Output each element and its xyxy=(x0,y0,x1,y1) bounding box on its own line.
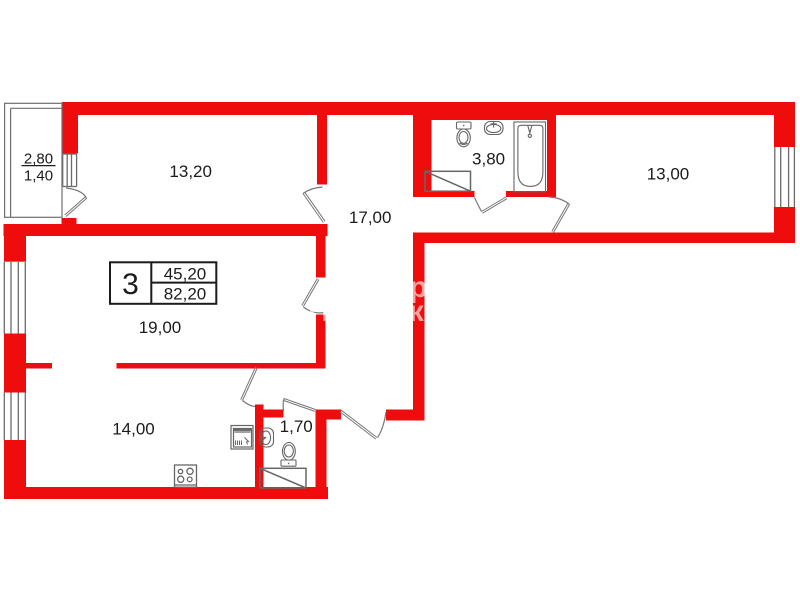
svg-text:2,80: 2,80 xyxy=(24,150,53,167)
svg-text:3,80: 3,80 xyxy=(472,150,505,169)
svg-text:13,00: 13,00 xyxy=(647,165,690,184)
svg-text:17,00: 17,00 xyxy=(349,208,392,227)
svg-text:13,20: 13,20 xyxy=(169,162,212,181)
svg-text:1,70: 1,70 xyxy=(280,417,313,436)
svg-text:1,40: 1,40 xyxy=(24,167,53,184)
svg-text:Недвижимость: Недвижимость xyxy=(308,295,532,328)
svg-text:82,20: 82,20 xyxy=(164,285,207,304)
svg-text:14,00: 14,00 xyxy=(112,420,155,439)
svg-text:19,00: 19,00 xyxy=(139,318,182,337)
svg-text:45,20: 45,20 xyxy=(164,265,207,284)
svg-text:3: 3 xyxy=(122,268,139,301)
